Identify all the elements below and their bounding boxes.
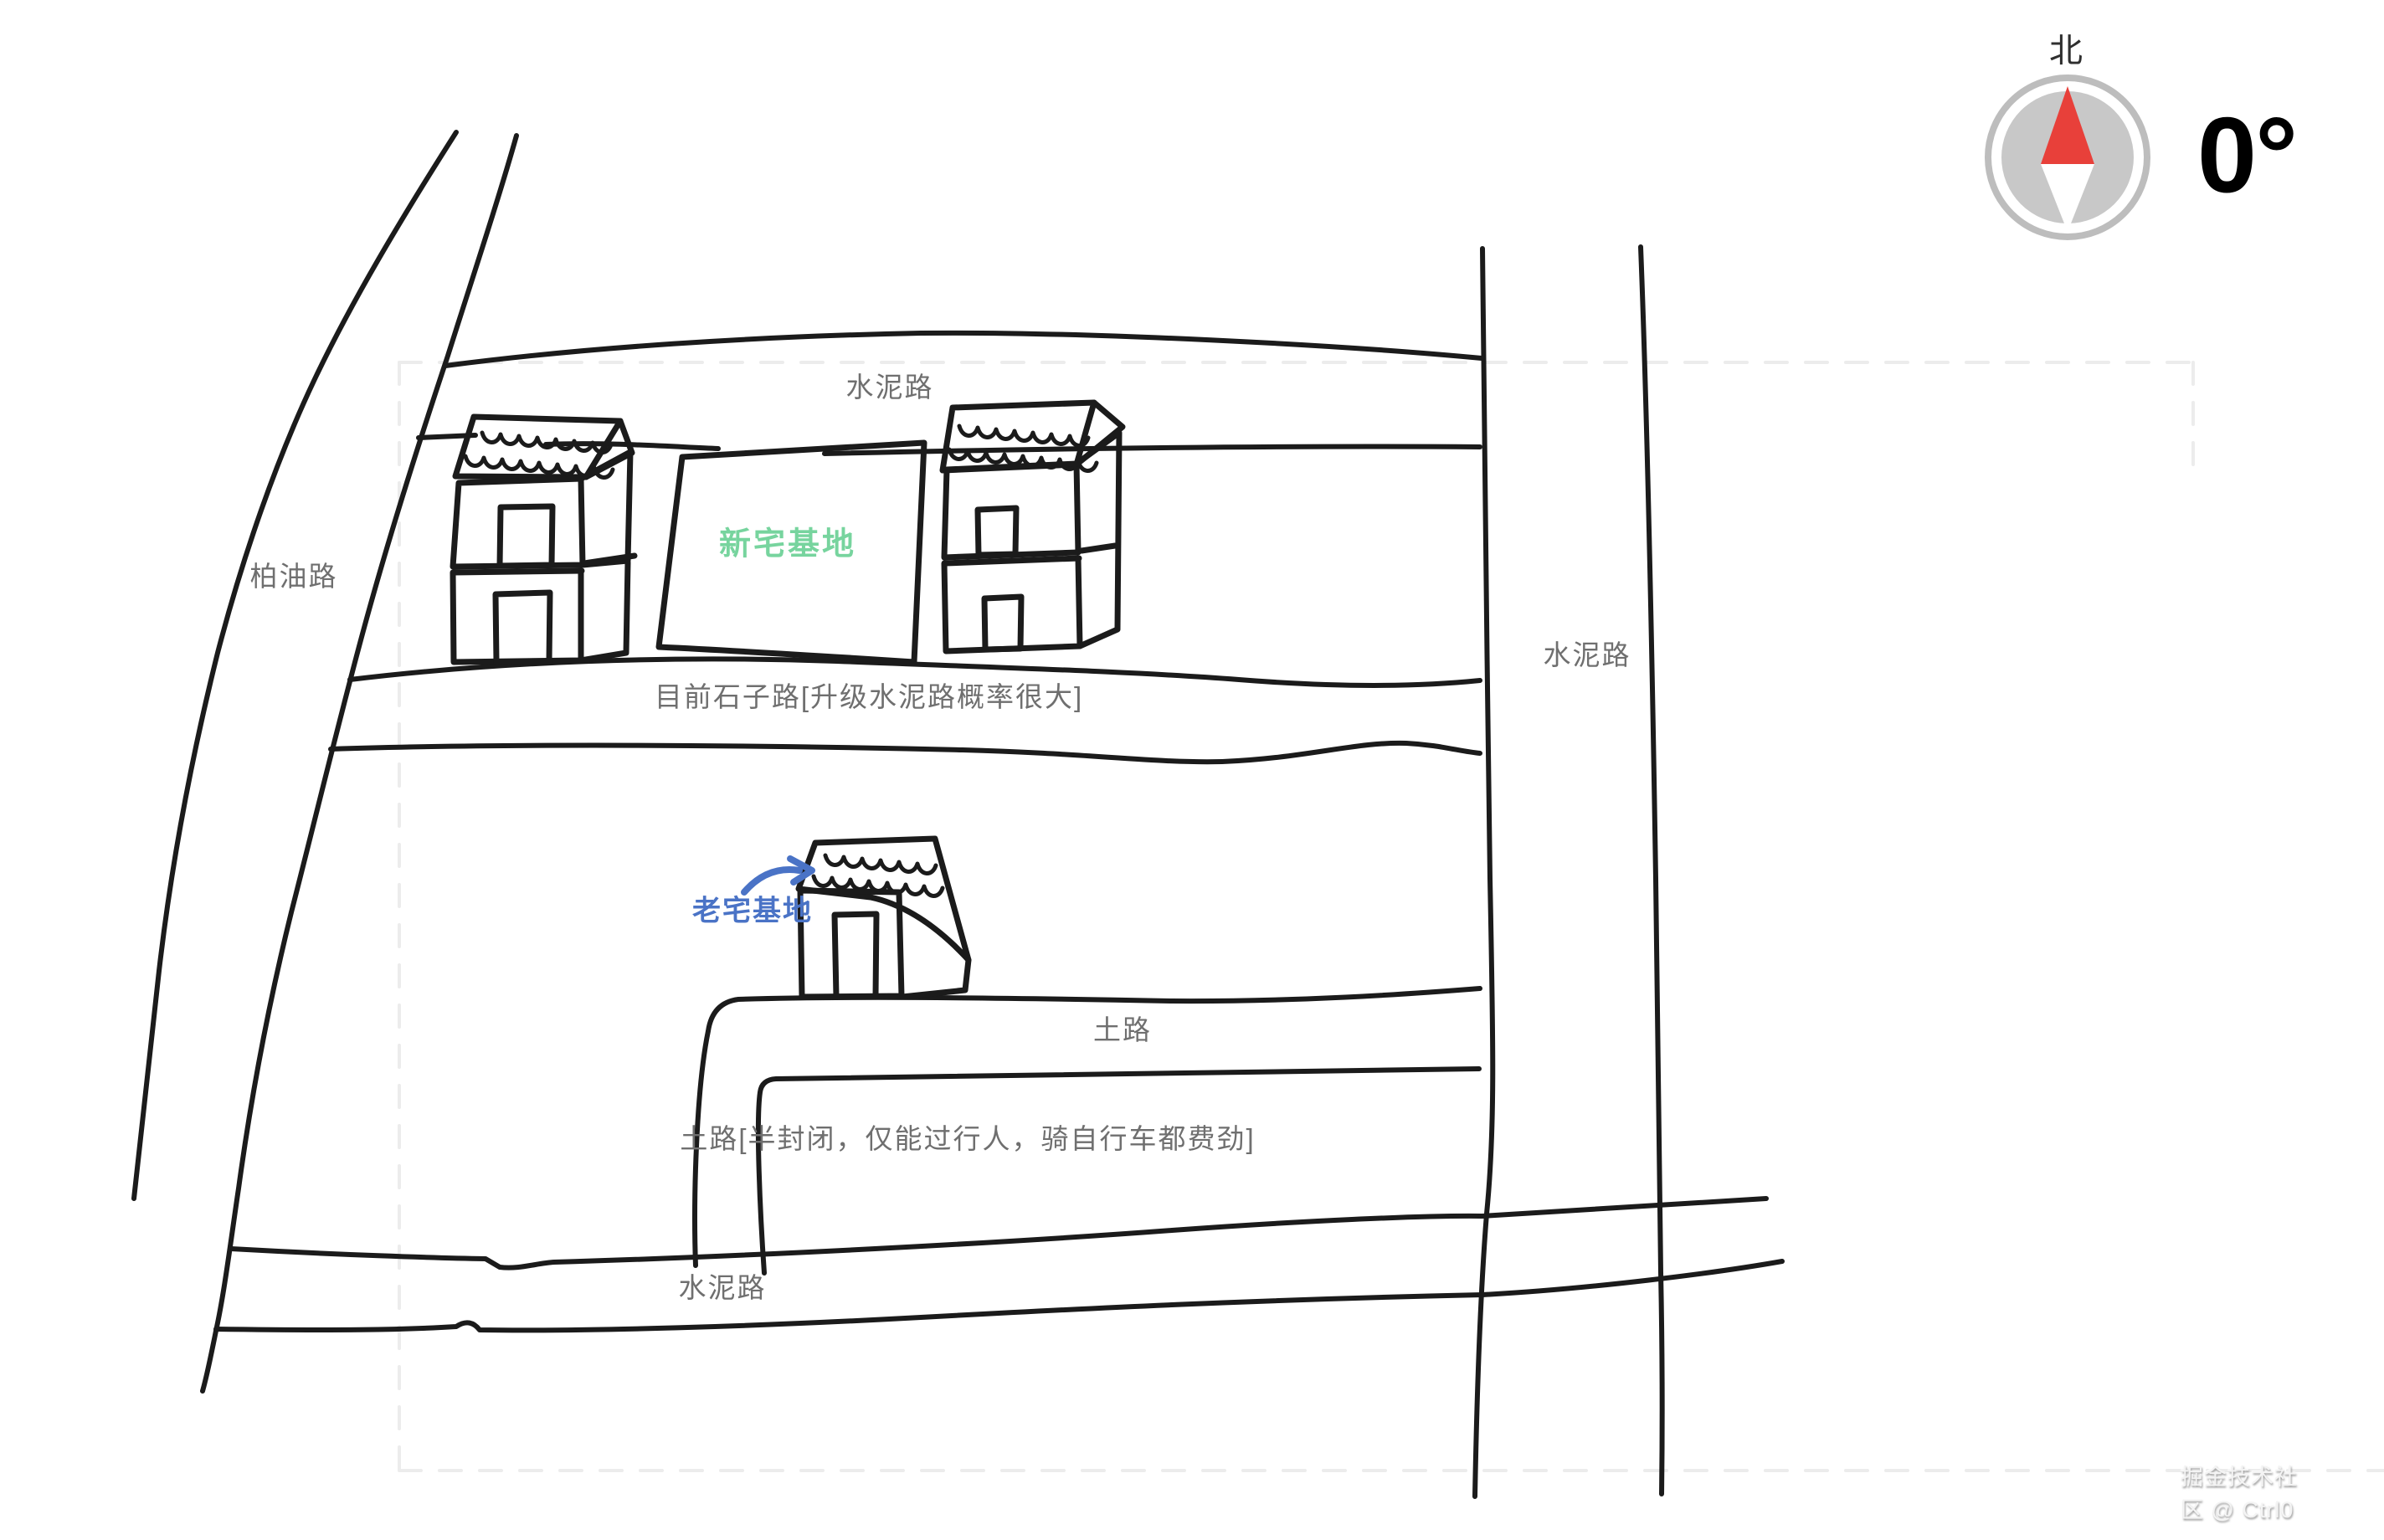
old-house — [799, 839, 968, 997]
house-right — [943, 403, 1123, 651]
compass-dial — [1988, 78, 2147, 237]
old-plot-label: 老宅基地 — [692, 888, 813, 929]
new-plot-label: 新宅基地 — [719, 518, 856, 564]
compass-bearing-value: 0° — [2197, 95, 2296, 218]
bottom-road-label: 水泥路 — [679, 1265, 767, 1306]
map-drawing — [0, 0, 2384, 1540]
right-road-label: 水泥路 — [1544, 633, 1631, 673]
watermark: 掘金技术社区 @ Ctrl0 — [2181, 1459, 2316, 1524]
compass-north-label: 北 — [2049, 23, 2083, 72]
house-left — [453, 417, 635, 662]
gravel-road-label: 目前石子路[升级水泥路概率很大] — [655, 675, 1083, 715]
right-cement-road — [1475, 247, 1662, 1496]
dirt-road-note-label: 土路[半封闭，仅能过行人，骑自行车都费劲] — [680, 1116, 1255, 1157]
bottom-cement-road — [216, 1199, 1782, 1330]
dirt-road-label: 土路 — [1093, 1008, 1152, 1048]
hand-drawn-map: 水泥路 柏油路 新宅基地 水泥路 目前石子路[升级水泥路概率很大] 老宅基地 土… — [0, 0, 2384, 1540]
top-road-label: 水泥路 — [846, 365, 934, 405]
left-road-label: 柏油路 — [250, 554, 338, 594]
asphalt-road — [134, 132, 516, 1391]
